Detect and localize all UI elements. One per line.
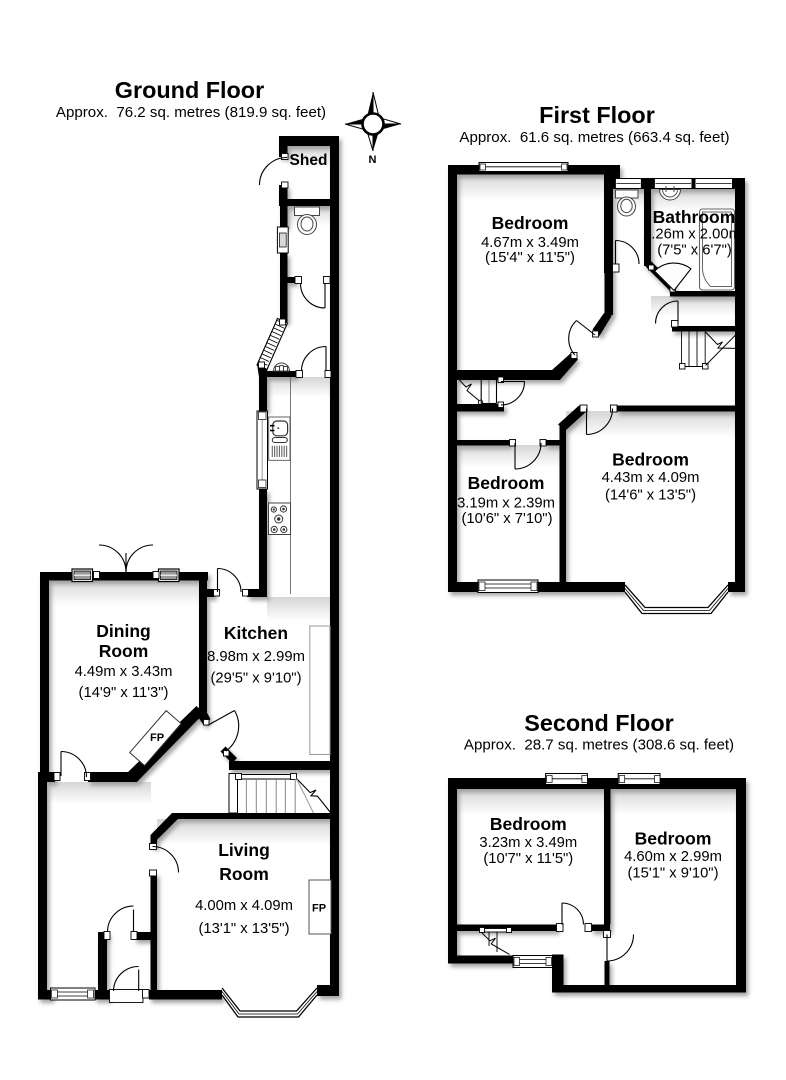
svg-text:4.60m x 2.99m: 4.60m x 2.99m [624,849,722,865]
svg-text:Second Floor: Second Floor [524,710,673,736]
svg-text:Approx. 76.2 sq. metres (819.: Approx. 76.2 sq. metres (819.9 sq. feet) [56,104,326,121]
svg-text:8.98m x 2.99m: 8.98m x 2.99m [207,649,305,665]
svg-text:Bedroom: Bedroom [492,213,569,233]
svg-text:(10'7" x 11'5"): (10'7" x 11'5") [483,851,573,867]
svg-text:4.43m x 4.09m: 4.43m x 4.09m [602,470,700,486]
svg-text:Bathroom: Bathroom [653,207,736,227]
svg-text:Ground Floor: Ground Floor [115,77,264,103]
svg-text:3.19m x 2.39m: 3.19m x 2.39m [457,496,555,512]
svg-text:N: N [369,154,377,166]
svg-text:Dining: Dining [96,621,150,641]
svg-text:FP: FP [312,903,326,915]
svg-text:(14'6" x 13'5"): (14'6" x 13'5") [605,488,696,504]
svg-text:4.00m x 4.09m: 4.00m x 4.09m [195,898,293,914]
svg-text:4.49m x 3.43m: 4.49m x 3.43m [75,664,173,680]
svg-text:First Floor: First Floor [539,102,655,128]
svg-text:(13'1" x 13'5"): (13'1" x 13'5") [198,921,289,937]
svg-text:Room: Room [99,641,149,661]
svg-text:Approx. 61.6 sq. metres (663.: Approx. 61.6 sq. metres (663.4 sq. feet) [459,129,729,146]
svg-text:Kitchen: Kitchen [224,623,288,643]
svg-text:Bedroom: Bedroom [468,473,545,493]
svg-text:(7'5" x 6'7"): (7'5" x 6'7") [657,243,732,259]
svg-text:Bedroom: Bedroom [490,814,567,834]
svg-text:Living: Living [218,840,270,860]
svg-text:(14'9" x 11'3"): (14'9" x 11'3") [79,685,169,701]
svg-text:Bedroom: Bedroom [635,829,712,849]
svg-text:Bedroom: Bedroom [612,450,689,470]
svg-text:Room: Room [219,864,269,884]
svg-text:(15'4" x 11'5"): (15'4" x 11'5") [485,250,575,266]
svg-text:3.23m x 3.49m: 3.23m x 3.49m [479,835,577,851]
svg-text:(10'6" x 7'10"): (10'6" x 7'10") [461,511,552,527]
svg-text:FP: FP [150,732,164,744]
svg-text:4.67m x 3.49m: 4.67m x 3.49m [481,235,579,251]
svg-text:Approx. 28.7 sq. metres (308.: Approx. 28.7 sq. metres (308.6 sq. feet) [464,737,734,754]
svg-text:2.26m x 2.00m: 2.26m x 2.00m [643,227,741,243]
svg-text:(15'1" x 9'10"): (15'1" x 9'10") [627,866,718,882]
svg-text:(29'5" x 9'10"): (29'5" x 9'10") [210,671,301,687]
svg-text:Shed: Shed [290,152,328,169]
